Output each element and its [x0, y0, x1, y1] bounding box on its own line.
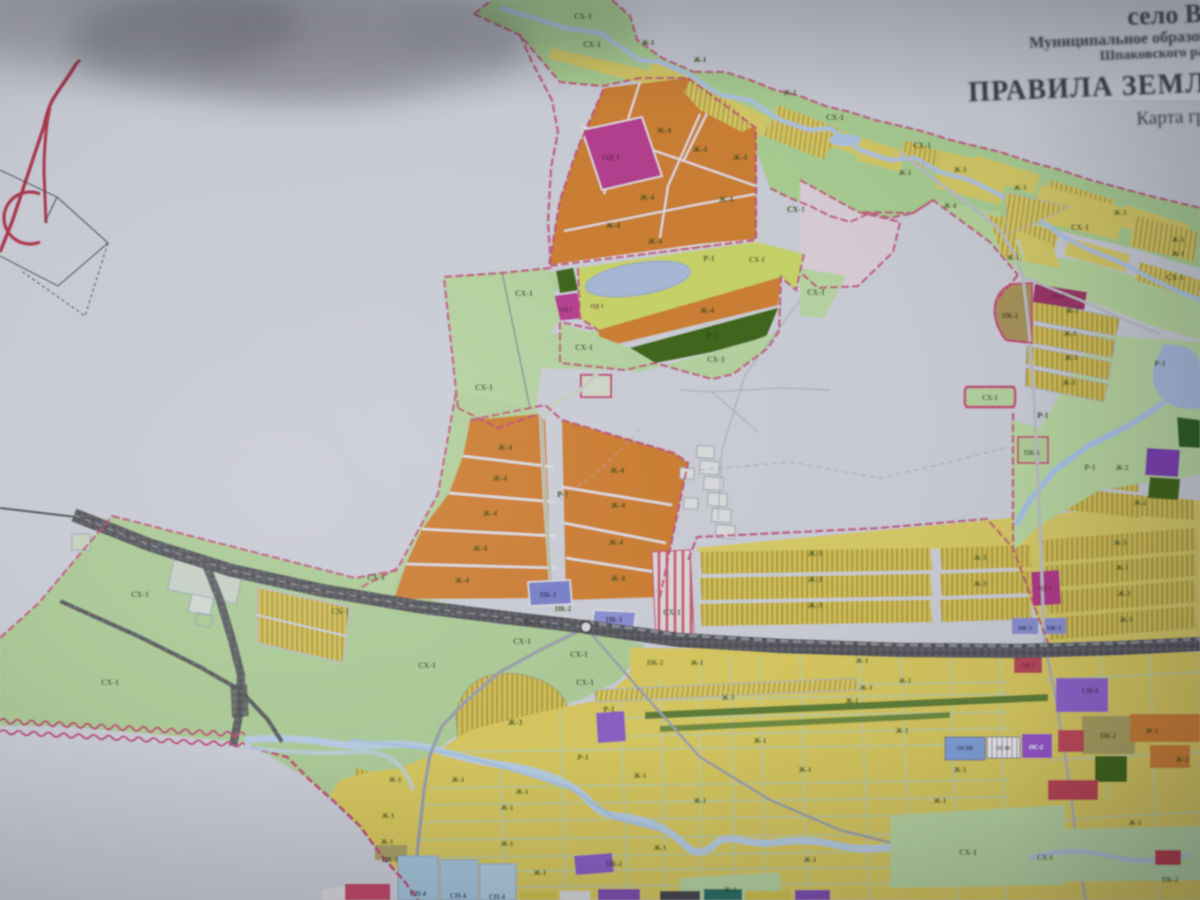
svg-text:село Верхнерусское: село Верхнерусское — [1127, 0, 1200, 31]
